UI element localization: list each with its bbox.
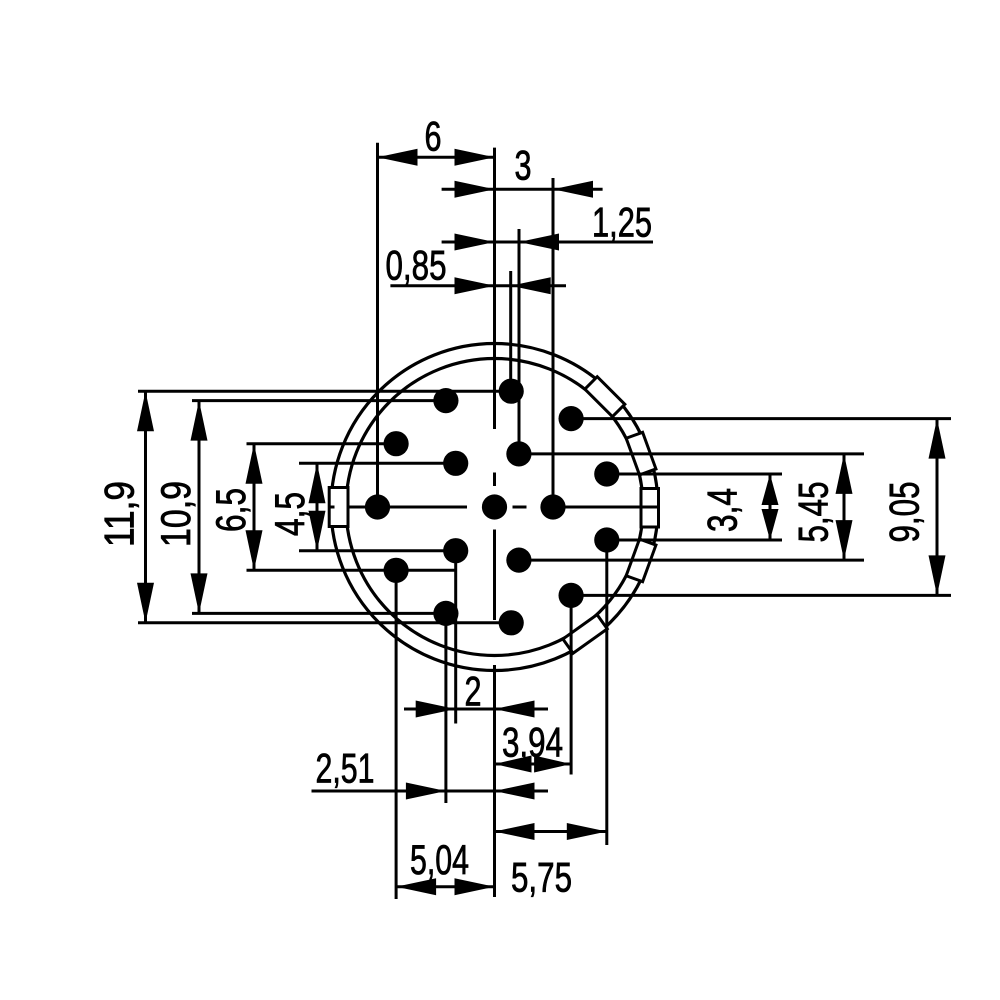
svg-text:3,94: 3,94 — [502, 718, 563, 765]
svg-text:5,04: 5,04 — [410, 836, 469, 883]
svg-text:4,5: 4,5 — [266, 492, 313, 536]
svg-text:5,75: 5,75 — [511, 853, 572, 900]
svg-text:3,4: 3,4 — [698, 488, 745, 532]
svg-text:6: 6 — [425, 112, 442, 159]
svg-text:6,5: 6,5 — [207, 488, 254, 532]
svg-text:11,9: 11,9 — [95, 481, 142, 547]
svg-text:0,85: 0,85 — [386, 241, 447, 288]
svg-text:1,25: 1,25 — [592, 198, 652, 245]
svg-text:5,45: 5,45 — [789, 482, 836, 543]
svg-text:2,51: 2,51 — [316, 744, 375, 791]
svg-text:10,9: 10,9 — [152, 481, 199, 547]
svg-text:3: 3 — [515, 141, 532, 188]
svg-text:9,05: 9,05 — [880, 482, 927, 543]
svg-text:2: 2 — [465, 667, 482, 714]
